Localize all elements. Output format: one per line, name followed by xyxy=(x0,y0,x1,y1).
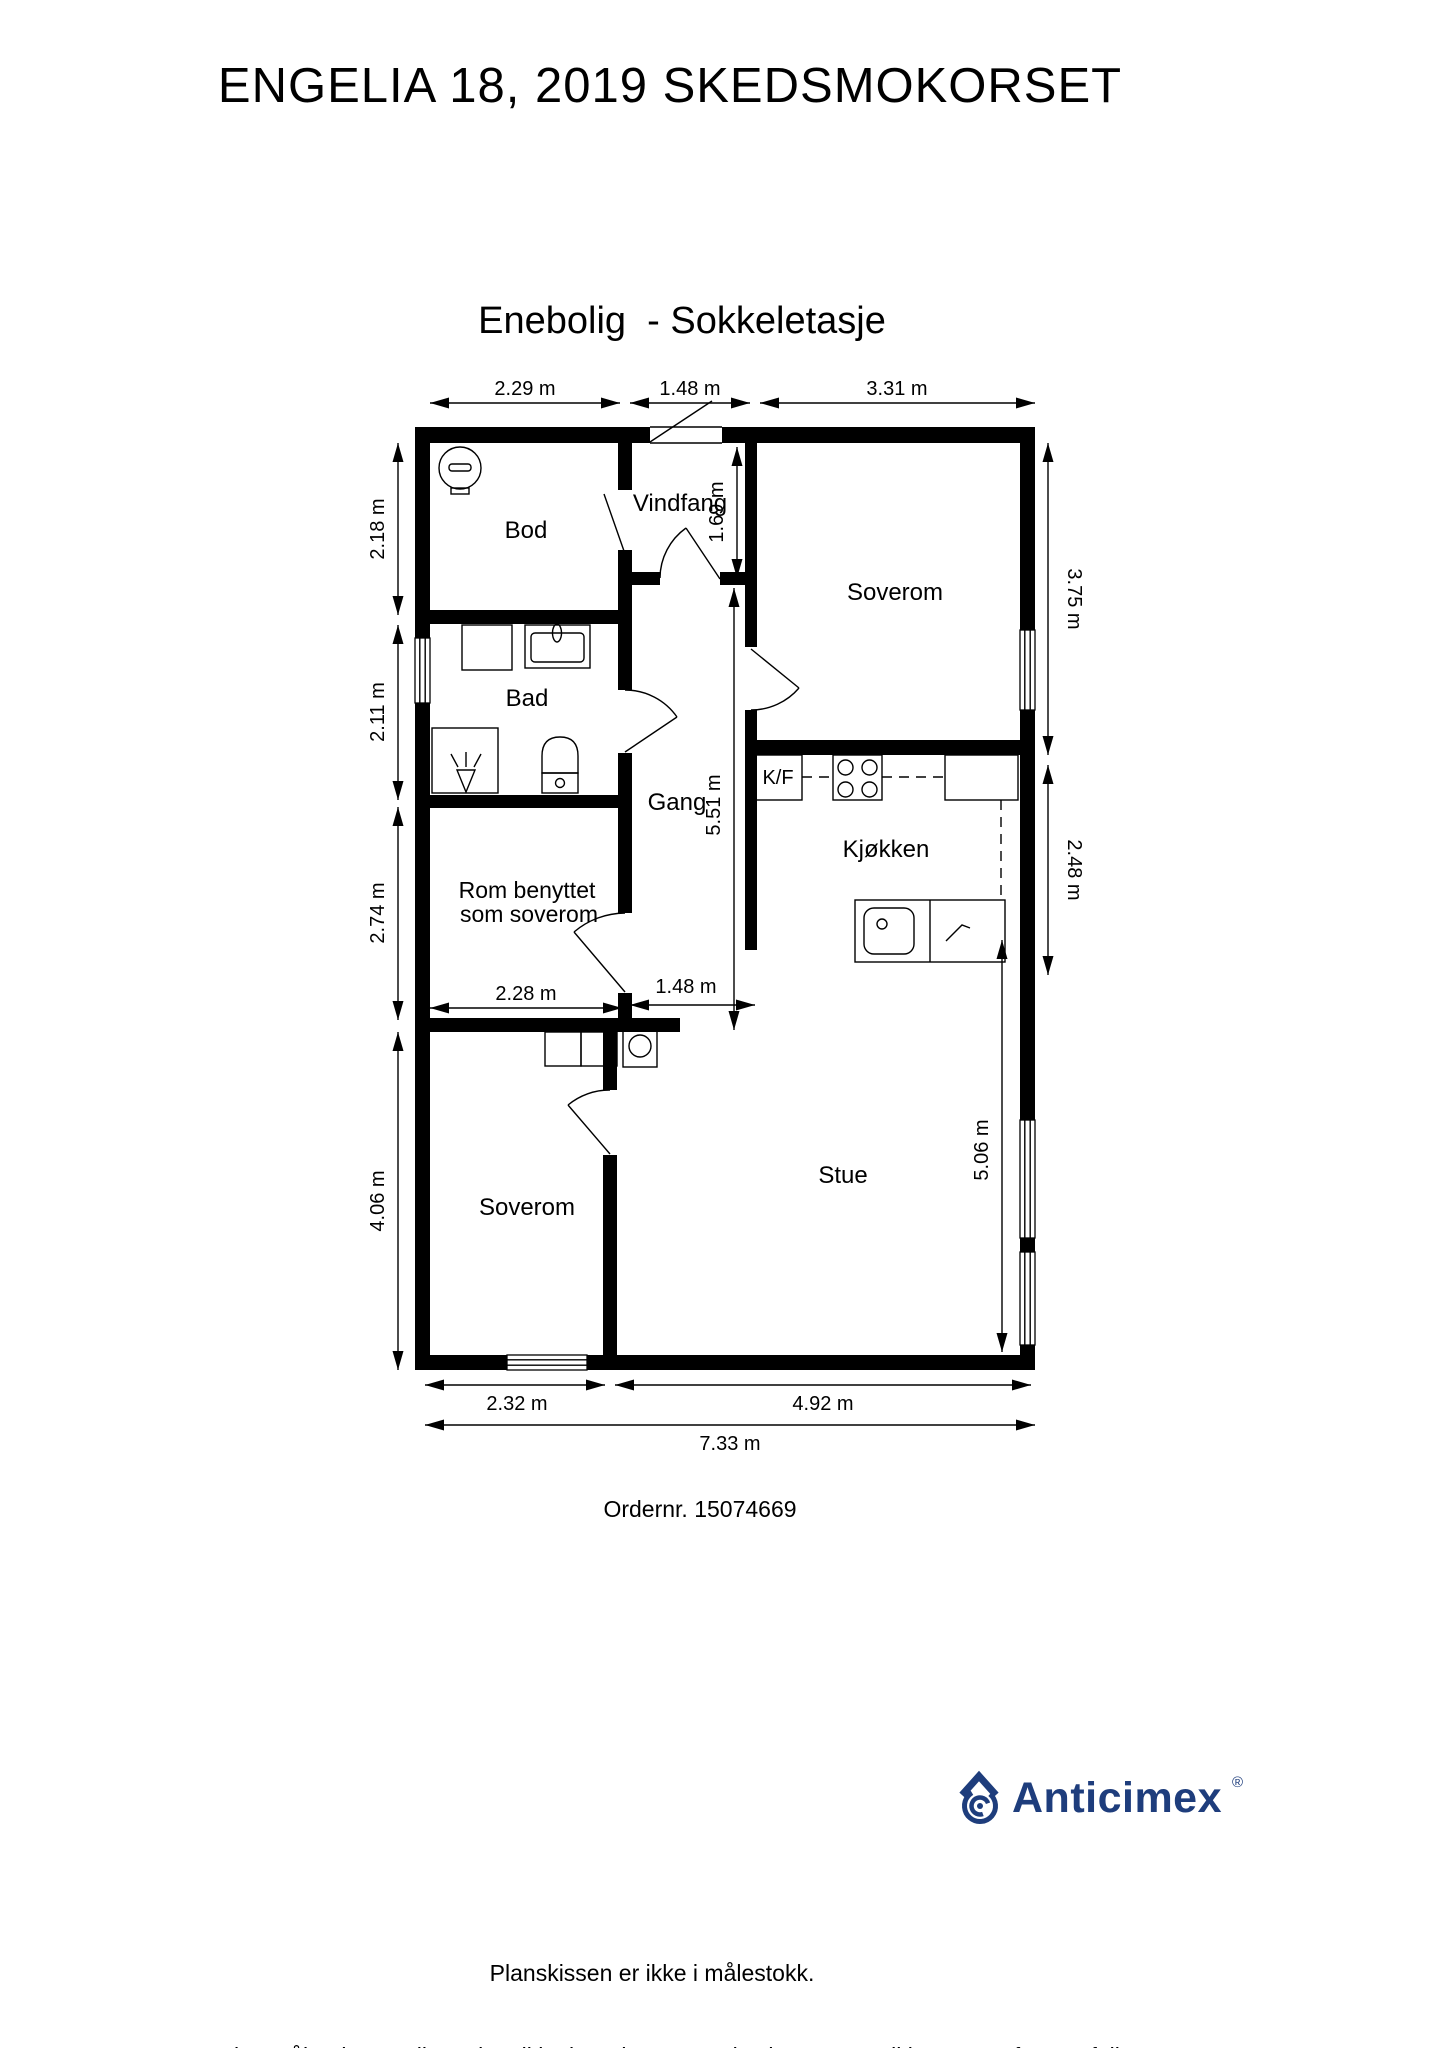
dim-left-bad: 2.11 m xyxy=(367,682,389,742)
fireplace xyxy=(623,1030,657,1067)
floorplan-document: ENGELIA 18, 2019 SKEDSMOKORSET Enebolig … xyxy=(0,0,1448,2048)
dim-right-soverom: 3.75 m xyxy=(1063,568,1085,629)
door-soverom-top xyxy=(751,649,799,710)
door-bad xyxy=(625,690,677,752)
kitchen-sink xyxy=(864,908,914,954)
room-label-kjokken: Kjøkken xyxy=(843,836,930,863)
dim-rom-width: 2.28 m xyxy=(495,983,556,1005)
room-label-bad: Bad xyxy=(506,685,549,712)
room-label-bod: Bod xyxy=(505,517,548,544)
kitchen-island xyxy=(855,900,1005,962)
room-label-vindfang: Vindfang xyxy=(633,490,727,517)
shower xyxy=(432,728,498,793)
room-label-rom-line1: Rom benyttet xyxy=(459,877,596,903)
stove xyxy=(833,755,882,800)
toilet xyxy=(542,737,578,793)
bath-cabinet xyxy=(462,625,512,670)
dim-stue-height: 5.06 m xyxy=(971,1119,993,1180)
room-label-gang: Gang xyxy=(648,789,707,816)
disclaimer-line-2: Oppgitte mål er innvendig og kan ikke be… xyxy=(168,2043,1137,2048)
disclaimer-line-1: Planskissen er ikke i målestokk. xyxy=(168,1960,1137,1988)
bath-sink xyxy=(525,624,590,668)
window-stue-lower xyxy=(1020,1252,1035,1345)
dim-top-vindfang: 1.48 m xyxy=(659,378,720,400)
room-label-rom-line2: som soverom xyxy=(460,901,598,927)
room-label-soverom-top: Soverom xyxy=(847,579,943,606)
room-label-stue: Stue xyxy=(818,1162,867,1189)
window-soverom-top xyxy=(1020,630,1035,710)
dim-left-soverom: 4.06 m xyxy=(367,1170,389,1231)
window-soverom-bottom xyxy=(507,1355,587,1370)
dim-bottom-stue: 4.92 m xyxy=(792,1393,853,1415)
room-label-soverom-bottom: Soverom xyxy=(479,1194,575,1221)
dim-bottom-soverom: 2.32 m xyxy=(486,1393,547,1415)
water-heater xyxy=(439,447,481,494)
door-soverom-bottom xyxy=(568,1090,610,1154)
dim-right-kjokken: 2.48 m xyxy=(1063,839,1085,900)
room-label-kf: K/F xyxy=(762,767,793,789)
window-bad xyxy=(415,638,430,703)
door-bod xyxy=(604,494,624,551)
registered-trademark-symbol: ® xyxy=(1232,1774,1243,1791)
dim-bottom-total: 7.33 m xyxy=(699,1433,760,1455)
disclaimer-footer: Planskissen er ikke i målestokk. Oppgitt… xyxy=(168,1905,1137,2048)
faucet-icon xyxy=(946,925,970,941)
dim-top-soverom: 3.31 m xyxy=(866,378,927,400)
entry-door xyxy=(650,401,722,443)
anticimex-logo-text: Anticimex xyxy=(1012,1774,1222,1823)
counter-cabinet xyxy=(945,755,1018,800)
room-labels: Bod Vindfang Soverom Bad Gang K/F Kjøkke… xyxy=(459,490,943,1221)
window-stue-upper xyxy=(1020,1120,1035,1238)
anticimex-logo: Anticimex ® xyxy=(958,1770,1243,1826)
dim-left-rom: 2.74 m xyxy=(367,882,389,943)
floorplan-drawing: 2.29 m 1.48 m 3.31 m 2.18 m 2.11 m 2.74 … xyxy=(0,0,1448,2048)
dim-left-bod: 2.18 m xyxy=(367,498,389,559)
dim-gang-width: 1.48 m xyxy=(655,976,716,998)
order-number: Ordernr. 15074669 xyxy=(603,1496,796,1523)
anticimex-logo-icon xyxy=(958,1770,1002,1826)
dim-top-bod: 2.29 m xyxy=(494,378,555,400)
